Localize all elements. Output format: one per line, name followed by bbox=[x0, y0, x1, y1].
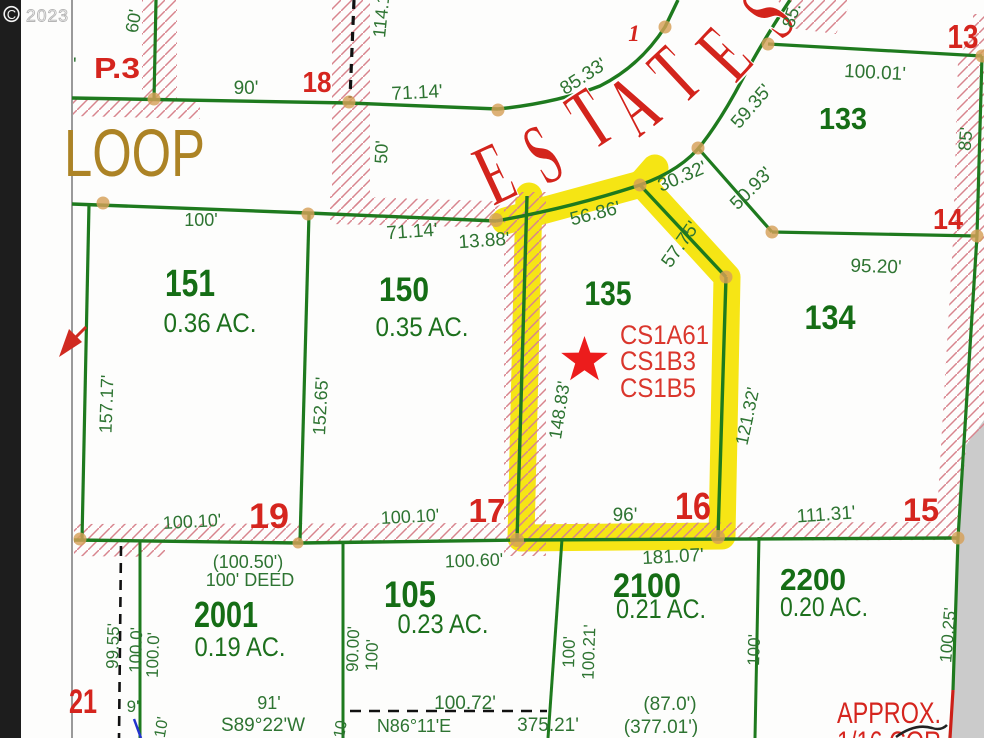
svg-text:': ' bbox=[73, 55, 77, 76]
svg-text:(377.01'): (377.01') bbox=[624, 717, 698, 738]
svg-text:0.20 AC.: 0.20 AC. bbox=[780, 592, 868, 622]
svg-text:100.01': 100.01' bbox=[844, 61, 907, 85]
svg-text:134: 134 bbox=[805, 299, 856, 337]
svg-text:100.0': 100.0' bbox=[143, 632, 164, 678]
svg-text:375.21': 375.21' bbox=[517, 715, 579, 736]
svg-text:9': 9' bbox=[127, 697, 140, 716]
svg-text:181.07': 181.07' bbox=[642, 545, 705, 569]
svg-text:10': 10' bbox=[152, 716, 172, 738]
svg-text:71.14': 71.14' bbox=[386, 220, 439, 245]
svg-text:133: 133 bbox=[819, 101, 867, 136]
svg-text:100.21': 100.21' bbox=[579, 624, 600, 680]
svg-text:16: 16 bbox=[675, 486, 711, 528]
svg-text:100': 100' bbox=[559, 636, 579, 668]
svg-text:85': 85' bbox=[955, 126, 977, 151]
svg-text:N86°11'E: N86°11'E bbox=[377, 716, 451, 736]
svg-text:71.14': 71.14' bbox=[391, 81, 443, 105]
svg-text:100.60': 100.60' bbox=[444, 549, 503, 571]
svg-text:0.21 AC.: 0.21 AC. bbox=[616, 594, 706, 624]
svg-text:100.72': 100.72' bbox=[434, 693, 496, 714]
svg-text:60': 60' bbox=[122, 8, 146, 35]
svg-text:100' DEED: 100' DEED bbox=[206, 570, 294, 590]
svg-text:157.17': 157.17' bbox=[95, 374, 117, 433]
svg-text:17: 17 bbox=[469, 492, 506, 529]
svg-text:S89°22'W: S89°22'W bbox=[221, 715, 305, 736]
svg-text:90': 90' bbox=[234, 78, 259, 99]
svg-text:1: 1 bbox=[628, 21, 640, 46]
svg-text:21: 21 bbox=[69, 683, 97, 721]
svg-text:P.3: P.3 bbox=[94, 53, 140, 85]
svg-text:LOOP: LOOP bbox=[64, 116, 205, 191]
svg-text:0.36 AC.: 0.36 AC. bbox=[164, 308, 257, 338]
svg-text:95.20': 95.20' bbox=[850, 256, 902, 279]
svg-text:C: C bbox=[7, 7, 16, 22]
svg-text:100': 100' bbox=[184, 210, 217, 230]
svg-text:50': 50' bbox=[371, 140, 392, 164]
svg-text:152.65': 152.65' bbox=[309, 376, 332, 435]
svg-text:15: 15 bbox=[903, 492, 939, 528]
svg-text:2023: 2023 bbox=[26, 6, 69, 26]
svg-text:0.35 AC.: 0.35 AC. bbox=[376, 312, 469, 342]
svg-text:0.23 AC.: 0.23 AC. bbox=[398, 609, 489, 639]
svg-text:100': 100' bbox=[362, 639, 382, 671]
svg-text:100': 100' bbox=[744, 634, 764, 666]
svg-text:100.10': 100.10' bbox=[380, 505, 439, 528]
svg-text:150: 150 bbox=[379, 271, 429, 309]
svg-text:100.10': 100.10' bbox=[162, 510, 221, 533]
svg-text:18: 18 bbox=[303, 67, 332, 99]
svg-text:90.00': 90.00' bbox=[343, 626, 364, 672]
svg-text:96': 96' bbox=[613, 505, 638, 526]
svg-text:14: 14 bbox=[933, 204, 963, 236]
svg-text:19: 19 bbox=[249, 497, 289, 536]
svg-text:2001: 2001 bbox=[194, 594, 258, 635]
svg-text:99.55': 99.55' bbox=[103, 623, 124, 669]
svg-text:111.31': 111.31' bbox=[796, 502, 856, 527]
svg-text:135: 135 bbox=[585, 275, 632, 313]
svg-text:10: 10 bbox=[331, 719, 351, 738]
svg-text:(87.0'): (87.0') bbox=[643, 694, 696, 715]
svg-text:CS1B3: CS1B3 bbox=[620, 346, 696, 376]
svg-text:13.88': 13.88' bbox=[458, 229, 511, 254]
svg-text:151: 151 bbox=[165, 263, 215, 305]
svg-text:(100.50'): (100.50') bbox=[213, 552, 283, 572]
svg-text:0.19 AC.: 0.19 AC. bbox=[195, 632, 286, 662]
svg-text:13: 13 bbox=[948, 18, 979, 55]
svg-text:CS1B5: CS1B5 bbox=[620, 373, 696, 403]
svg-text:91': 91' bbox=[257, 693, 280, 713]
